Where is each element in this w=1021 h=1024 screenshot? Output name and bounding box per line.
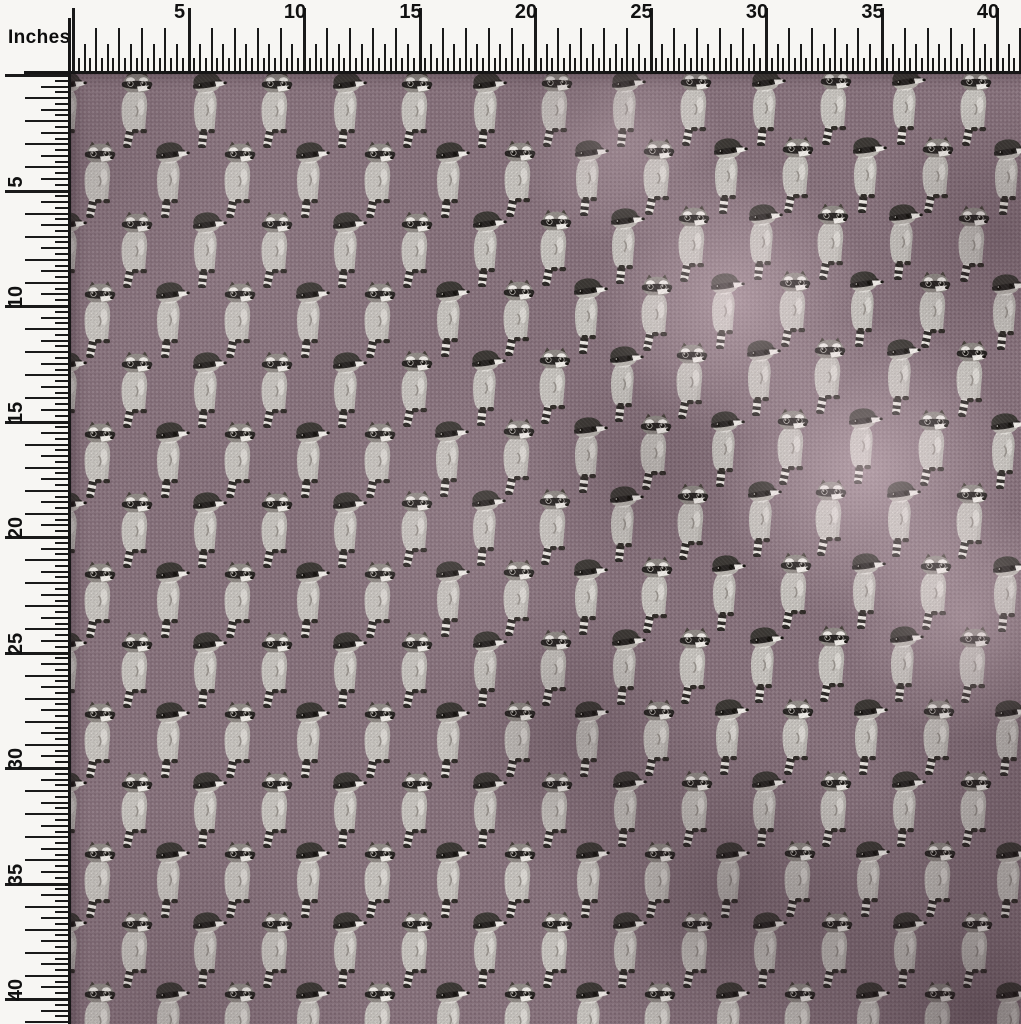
ruler-tick xyxy=(684,44,686,74)
raccoon-motif xyxy=(465,74,509,148)
ruler-tick xyxy=(557,28,559,74)
raccoon-motif xyxy=(218,140,262,218)
ruler-tick xyxy=(41,1010,71,1012)
raccoon-motif xyxy=(498,980,542,1024)
raccoon-motif xyxy=(255,350,299,428)
ruler-tick xyxy=(25,397,71,399)
raccoon-motif xyxy=(115,490,159,568)
ruler-tick xyxy=(25,813,71,815)
ruler-tick xyxy=(176,44,178,74)
raccoon-motif xyxy=(638,840,682,918)
raccoon-motif xyxy=(884,769,928,847)
ruler-tick xyxy=(349,28,351,74)
ruler-tick xyxy=(41,963,71,965)
ruler-tick xyxy=(25,490,71,492)
ruler-tick xyxy=(164,28,166,74)
ruler-tick xyxy=(961,44,963,74)
ruler-tick xyxy=(488,28,490,74)
ruler-tick xyxy=(25,628,71,630)
ruler-tick xyxy=(25,744,71,746)
raccoon-motif xyxy=(954,769,998,847)
ruler-tick xyxy=(41,363,71,365)
ruler-tick xyxy=(41,986,71,988)
ruler-tick xyxy=(869,44,871,74)
ruler-tick xyxy=(245,44,247,74)
ruler-tick xyxy=(41,686,71,688)
ruler-tick xyxy=(41,871,71,873)
raccoon-motif xyxy=(325,910,369,988)
raccoon-motif xyxy=(841,406,885,484)
raccoon-motif xyxy=(325,210,369,288)
raccoon-motif xyxy=(185,210,229,288)
raccoon-motif xyxy=(914,552,958,630)
raccoon-motif xyxy=(918,980,962,1024)
ruler-tick xyxy=(41,848,71,850)
raccoon-motif xyxy=(605,769,649,847)
ruler-tick xyxy=(25,166,71,168)
raccoon-motif xyxy=(395,74,439,148)
ruler-tick xyxy=(823,44,825,74)
raccoon-motif xyxy=(71,770,89,848)
raccoon-motif xyxy=(115,350,159,428)
ruler-tick xyxy=(592,44,594,74)
raccoon-motif xyxy=(535,910,579,988)
ruler-tick xyxy=(569,44,571,74)
raccoon-motif xyxy=(358,700,402,778)
raccoon-motif xyxy=(71,910,89,988)
ruler-tick xyxy=(41,663,71,665)
ruler-tick xyxy=(904,28,906,74)
raccoon-motif xyxy=(879,479,923,557)
raccoon-motif xyxy=(71,630,89,708)
ruler-tick xyxy=(41,386,71,388)
ruler-tick xyxy=(41,802,71,804)
ruler-tick xyxy=(626,28,628,74)
raccoon-motif xyxy=(745,910,789,988)
raccoon-motif xyxy=(148,280,192,358)
ruler-tick xyxy=(41,293,71,295)
raccoon-motif xyxy=(568,980,612,1024)
raccoon-motif xyxy=(497,278,541,356)
ruler-tick xyxy=(25,259,71,261)
ruler-number-left: 30 xyxy=(1,744,31,774)
ruler-number-left: 10 xyxy=(1,282,31,312)
raccoon-motif xyxy=(602,344,646,422)
ruler-unit-label: Inches xyxy=(8,27,71,49)
raccoon-motif xyxy=(988,840,1021,918)
raccoon-motif xyxy=(78,980,122,1024)
ruler-tick xyxy=(661,44,663,74)
ruler-tick xyxy=(141,28,143,74)
ruler-tick xyxy=(673,28,675,74)
ruler-tick xyxy=(84,44,86,74)
raccoon-motif xyxy=(771,407,815,485)
ruler-tick xyxy=(25,143,71,145)
raccoon-motif xyxy=(78,560,122,638)
raccoon-motif xyxy=(395,349,439,427)
raccoon-motif xyxy=(637,698,681,776)
ruler-tick xyxy=(41,524,71,526)
raccoon-motif xyxy=(71,350,89,428)
ruler-left: 510152025303540 xyxy=(0,74,71,1024)
raccoon-motif xyxy=(288,840,332,918)
raccoon-motif xyxy=(148,980,192,1024)
raccoon-motif xyxy=(428,840,472,918)
raccoon-motif xyxy=(395,630,439,708)
ruler-tick xyxy=(1008,44,1010,74)
raccoon-motif xyxy=(428,140,472,218)
raccoon-motif xyxy=(71,74,89,148)
ruler-tick xyxy=(453,44,455,74)
ruler-tick xyxy=(25,975,71,977)
raccoon-motif xyxy=(568,840,612,918)
ruler-tick xyxy=(41,340,71,342)
ruler-tick xyxy=(41,432,71,434)
ruler-tick xyxy=(326,28,328,74)
raccoon-motif xyxy=(358,420,402,498)
ruler-tick xyxy=(811,28,813,74)
ruler-tick xyxy=(788,28,790,74)
ruler-tick xyxy=(188,8,191,74)
raccoon-motif xyxy=(465,910,509,988)
ruler-tick xyxy=(41,409,71,411)
fabric-product-photo: 510152025303540 510152025303540 Inches xyxy=(0,0,1021,1024)
ruler-tick xyxy=(234,28,236,74)
ruler-tick xyxy=(25,582,71,584)
raccoon-motif xyxy=(148,840,192,918)
raccoon-motif xyxy=(950,339,994,417)
ruler-tick xyxy=(153,44,155,74)
ruler-tick xyxy=(25,698,71,700)
raccoon-motif xyxy=(218,280,262,358)
ruler-tick xyxy=(777,44,779,74)
raccoon-motif xyxy=(218,840,262,918)
ruler-tick xyxy=(25,929,71,931)
raccoon-motif xyxy=(675,769,719,847)
raccoon-motif xyxy=(955,910,999,988)
raccoon-motif xyxy=(566,276,610,354)
ruler-tick xyxy=(95,28,97,74)
ruler-tick xyxy=(938,44,940,74)
ruler-number-left: 40 xyxy=(1,975,31,1005)
ruler-tick xyxy=(130,44,132,74)
ruler-tick xyxy=(696,28,698,74)
ruler-tick xyxy=(25,605,71,607)
ruler-tick xyxy=(41,940,71,942)
ruler-tick xyxy=(25,444,71,446)
raccoon-motif xyxy=(358,140,402,218)
raccoon-motif xyxy=(148,560,192,638)
raccoon-motif xyxy=(566,415,610,493)
ruler-tick xyxy=(442,28,444,74)
ruler-tick xyxy=(384,44,386,74)
raccoon-motif xyxy=(534,208,578,286)
ruler-tick xyxy=(603,28,605,74)
ruler-tick xyxy=(41,640,71,642)
raccoon-motif xyxy=(740,479,784,557)
raccoon-motif xyxy=(115,630,159,708)
ruler-tick xyxy=(280,28,282,74)
ruler-tick xyxy=(892,44,894,74)
ruler-tick xyxy=(25,906,71,908)
ruler-tick xyxy=(25,836,71,838)
raccoon-motif xyxy=(778,839,822,917)
ruler-tick xyxy=(41,201,71,203)
ruler-number-top: 10 xyxy=(284,1,306,24)
raccoon-motif xyxy=(465,209,509,287)
raccoon-motif xyxy=(879,337,923,415)
raccoon-motif xyxy=(115,74,159,148)
raccoon-motif xyxy=(255,210,299,288)
ruler-tick xyxy=(25,120,71,122)
ruler-tick xyxy=(407,44,409,74)
ruler-tick xyxy=(41,86,71,88)
ruler-tick xyxy=(41,709,71,711)
ruler-tick xyxy=(41,478,71,480)
ruler-tick xyxy=(25,513,71,515)
ruler-tick xyxy=(118,28,120,74)
raccoon-motif xyxy=(498,840,542,918)
ruler-tick xyxy=(25,236,71,238)
raccoon-motif xyxy=(603,206,647,284)
raccoon-motif xyxy=(395,770,439,848)
raccoon-motif xyxy=(885,910,929,988)
ruler-number-left: 35 xyxy=(1,860,31,890)
ruler-tick xyxy=(580,28,582,74)
ruler-tick xyxy=(430,44,432,74)
raccoon-motif xyxy=(255,630,299,708)
raccoon-motif xyxy=(288,140,332,218)
ruler-tick xyxy=(465,28,467,74)
raccoon-motif xyxy=(814,769,858,847)
ruler-tick xyxy=(41,247,71,249)
raccoon-motif xyxy=(533,487,577,565)
raccoon-motif xyxy=(498,699,542,777)
raccoon-motif xyxy=(148,420,192,498)
ruler-tick xyxy=(25,328,71,330)
ruler-tick xyxy=(41,825,71,827)
raccoon-motif xyxy=(704,553,748,631)
raccoon-motif xyxy=(288,560,332,638)
ruler-tick xyxy=(753,44,755,74)
ruler-tick xyxy=(984,44,986,74)
raccoon-motif xyxy=(881,202,925,280)
ruler-tick xyxy=(25,1021,71,1023)
raccoon-motif xyxy=(78,420,122,498)
raccoon-motif xyxy=(708,980,752,1024)
raccoon-motif xyxy=(675,910,719,988)
ruler-number-top: 25 xyxy=(630,1,652,24)
raccoon-motif xyxy=(185,770,229,848)
raccoon-motif xyxy=(427,419,471,497)
ruler-tick xyxy=(25,467,71,469)
ruler-tick xyxy=(638,44,640,74)
ruler-tick xyxy=(25,952,71,954)
ruler-tick xyxy=(41,455,71,457)
ruler-tick xyxy=(41,178,71,180)
raccoon-motif xyxy=(602,484,646,562)
raccoon-motif xyxy=(671,482,715,560)
ruler-tick xyxy=(915,44,917,74)
raccoon-motif xyxy=(815,910,859,988)
ruler-tick xyxy=(615,44,617,74)
raccoon-motif xyxy=(71,490,89,568)
raccoon-motif xyxy=(358,980,402,1024)
raccoon-motif xyxy=(567,138,611,216)
raccoon-motif xyxy=(288,420,332,498)
raccoon-pattern xyxy=(71,74,1021,1024)
raccoon-motif xyxy=(535,74,579,147)
ruler-tick xyxy=(257,28,259,74)
raccoon-motif xyxy=(464,348,508,426)
raccoon-motif xyxy=(395,489,439,567)
raccoon-motif xyxy=(534,628,578,706)
raccoon-motif xyxy=(465,629,509,707)
ruler-tick xyxy=(41,501,71,503)
ruler-tick xyxy=(41,548,71,550)
ruler-tick xyxy=(222,44,224,74)
raccoon-motif xyxy=(954,74,998,146)
raccoon-motif xyxy=(670,341,714,419)
ruler-tick xyxy=(927,28,929,74)
ruler-tick xyxy=(834,28,836,74)
raccoon-motif xyxy=(774,551,818,629)
ruler-number-top: 30 xyxy=(746,1,768,24)
ruler-tick xyxy=(476,44,478,74)
ruler-tick xyxy=(25,790,71,792)
raccoon-motif xyxy=(604,627,648,705)
ruler-top-baseline xyxy=(24,71,1021,74)
raccoon-motif xyxy=(395,210,439,288)
raccoon-motif xyxy=(953,625,997,703)
raccoon-motif xyxy=(809,478,853,556)
ruler-tick xyxy=(522,44,524,74)
ruler-tick xyxy=(25,351,71,353)
raccoon-motif xyxy=(535,770,579,848)
ruler-tick xyxy=(41,317,71,319)
raccoon-motif xyxy=(428,279,472,357)
raccoon-motif xyxy=(773,269,817,347)
raccoon-motif xyxy=(918,839,962,917)
ruler-tick xyxy=(719,28,721,74)
ruler-tick xyxy=(25,675,71,677)
raccoon-motif xyxy=(358,560,402,638)
raccoon-motif xyxy=(983,411,1021,489)
raccoon-motif xyxy=(428,980,472,1024)
ruler-tick xyxy=(25,97,71,99)
raccoon-motif xyxy=(288,980,332,1024)
raccoon-motif xyxy=(985,554,1021,632)
raccoon-motif xyxy=(428,700,472,778)
ruler-tick xyxy=(800,44,802,74)
ruler-number-left: 5 xyxy=(1,167,31,197)
raccoon-motif xyxy=(566,557,610,635)
raccoon-motif xyxy=(950,481,994,559)
ruler-tick xyxy=(72,8,75,74)
ruler-tick xyxy=(211,28,213,74)
ruler-tick xyxy=(41,779,71,781)
raccoon-motif xyxy=(255,490,299,568)
raccoon-motif xyxy=(744,769,788,847)
raccoon-motif xyxy=(288,280,332,358)
raccoon-motif xyxy=(988,980,1021,1024)
ruler-left-baseline xyxy=(68,18,71,1024)
ruler-tick xyxy=(41,617,71,619)
ruler-tick xyxy=(41,755,71,757)
raccoon-motif xyxy=(703,409,747,487)
raccoon-motif xyxy=(465,770,509,848)
raccoon-motif xyxy=(844,551,888,629)
ruler-tick xyxy=(199,44,201,74)
ruler-tick xyxy=(25,374,71,376)
raccoon-motif xyxy=(185,630,229,708)
ruler-number-left: 25 xyxy=(1,629,31,659)
ruler-tick xyxy=(950,28,952,74)
ruler-tick xyxy=(41,132,71,134)
raccoon-motif xyxy=(185,910,229,988)
raccoon-motif xyxy=(987,698,1021,776)
ruler-tick xyxy=(973,28,975,74)
raccoon-motif xyxy=(218,700,262,778)
raccoon-motif xyxy=(78,840,122,918)
fabric-swatch xyxy=(71,74,1021,1024)
ruler-number-top: 40 xyxy=(977,1,999,24)
ruler-corner: Inches xyxy=(0,0,71,74)
raccoon-motif xyxy=(808,336,852,414)
ruler-number-left: 15 xyxy=(1,398,31,428)
raccoon-motif xyxy=(497,417,541,495)
raccoon-motif xyxy=(848,980,892,1024)
ruler-number-top: 5 xyxy=(174,1,185,24)
raccoon-motif xyxy=(78,700,122,778)
ruler-tick xyxy=(395,28,397,74)
raccoon-motif xyxy=(742,625,786,703)
raccoon-motif xyxy=(325,490,369,568)
ruler-tick xyxy=(707,44,709,74)
raccoon-motif xyxy=(912,408,956,486)
raccoon-motif xyxy=(776,697,820,775)
raccoon-motif xyxy=(812,624,856,702)
raccoon-motif xyxy=(255,910,299,988)
raccoon-motif xyxy=(358,840,402,918)
ruler-tick xyxy=(41,732,71,734)
ruler-tick xyxy=(742,28,744,74)
ruler-tick xyxy=(41,109,71,111)
ruler-number-top: 20 xyxy=(515,1,537,24)
ruler-tick xyxy=(499,44,501,74)
ruler-tick xyxy=(25,721,71,723)
raccoon-motif xyxy=(846,697,890,775)
raccoon-motif xyxy=(185,490,229,568)
raccoon-motif xyxy=(185,350,229,428)
ruler-tick xyxy=(372,28,374,74)
ruler-tick xyxy=(268,44,270,74)
raccoon-motif xyxy=(288,700,332,778)
ruler-number-left: 20 xyxy=(1,513,31,543)
raccoon-motif xyxy=(115,770,159,848)
raccoon-motif xyxy=(115,210,159,288)
raccoon-motif xyxy=(638,980,682,1024)
ruler-tick xyxy=(511,28,513,74)
ruler-tick xyxy=(315,44,317,74)
raccoon-motif xyxy=(218,980,262,1024)
raccoon-motif xyxy=(255,74,299,148)
raccoon-motif xyxy=(707,697,751,775)
raccoon-motif xyxy=(218,560,262,638)
raccoon-motif xyxy=(635,555,679,633)
raccoon-motif xyxy=(497,558,541,636)
ruler-number-top: 35 xyxy=(861,1,883,24)
